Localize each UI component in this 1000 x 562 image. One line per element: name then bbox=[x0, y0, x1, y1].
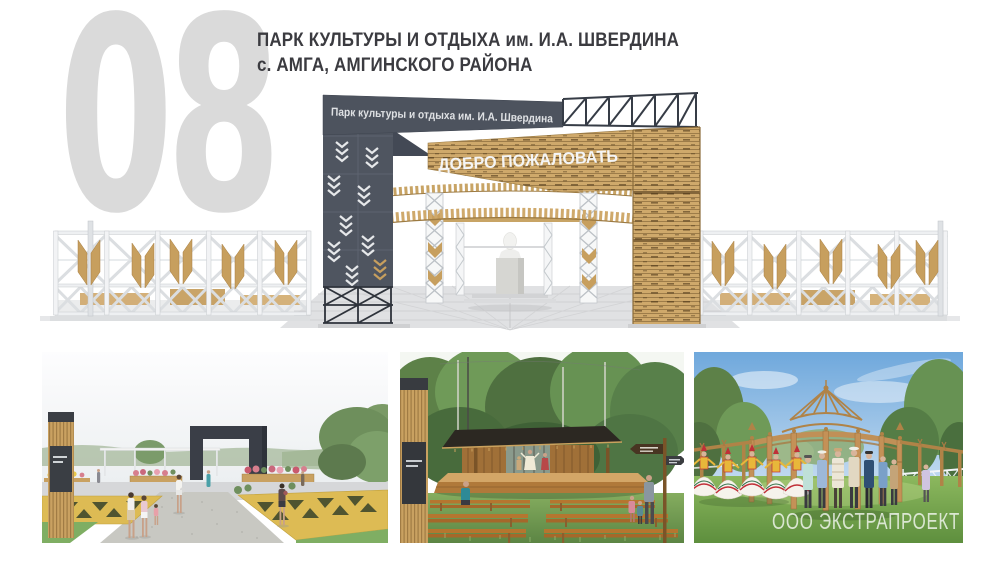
tree-left bbox=[134, 440, 166, 464]
render-plaza-view bbox=[42, 352, 388, 543]
right-tower-wood bbox=[628, 127, 706, 328]
stage-scene bbox=[400, 352, 684, 543]
gazebo-scene: ООО ЭКСТРАПРОЕКТ bbox=[694, 352, 963, 543]
main-render-entrance-gate: Парк культуры и отдыха им. И.А. Швердина… bbox=[40, 90, 960, 345]
plaza-scene bbox=[42, 352, 388, 543]
welcome-banner: ДОБРО ПОЖАЛОВАТЬ bbox=[428, 130, 633, 192]
project-location: с. АМГА, АМГИНСКОГО РАЙОНА bbox=[257, 53, 679, 78]
project-title: ПАРК КУЛЬТУРЫ И ОТДЫХА им. И.А. ШВЕРДИНА bbox=[257, 28, 679, 53]
watermark: ООО ЭКСТРАПРОЕКТ bbox=[772, 508, 960, 534]
render-gazebo-view: ООО ЭКСТРАПРОЕКТ bbox=[694, 352, 963, 543]
title-block: ПАРК КУЛЬТУРЫ И ОТДЫХА им. И.А. ШВЕРДИНА… bbox=[257, 28, 679, 79]
statue-bust bbox=[464, 233, 556, 312]
wayfinding-pillar bbox=[400, 378, 428, 543]
presentation-slide: 08 ПАРК КУЛЬТУРЫ И ОТДЫХА им. И.А. ШВЕРД… bbox=[0, 0, 1000, 562]
gate-name-sign: Парк культуры и отдыха им. И.А. Швердина bbox=[323, 95, 563, 135]
steel-truss bbox=[563, 93, 698, 127]
render-stage-view bbox=[400, 352, 684, 543]
entrance-gate-elevation: Парк культуры и отдыха им. И.А. Швердина… bbox=[40, 90, 960, 345]
wayfinding-pillar bbox=[48, 412, 74, 538]
